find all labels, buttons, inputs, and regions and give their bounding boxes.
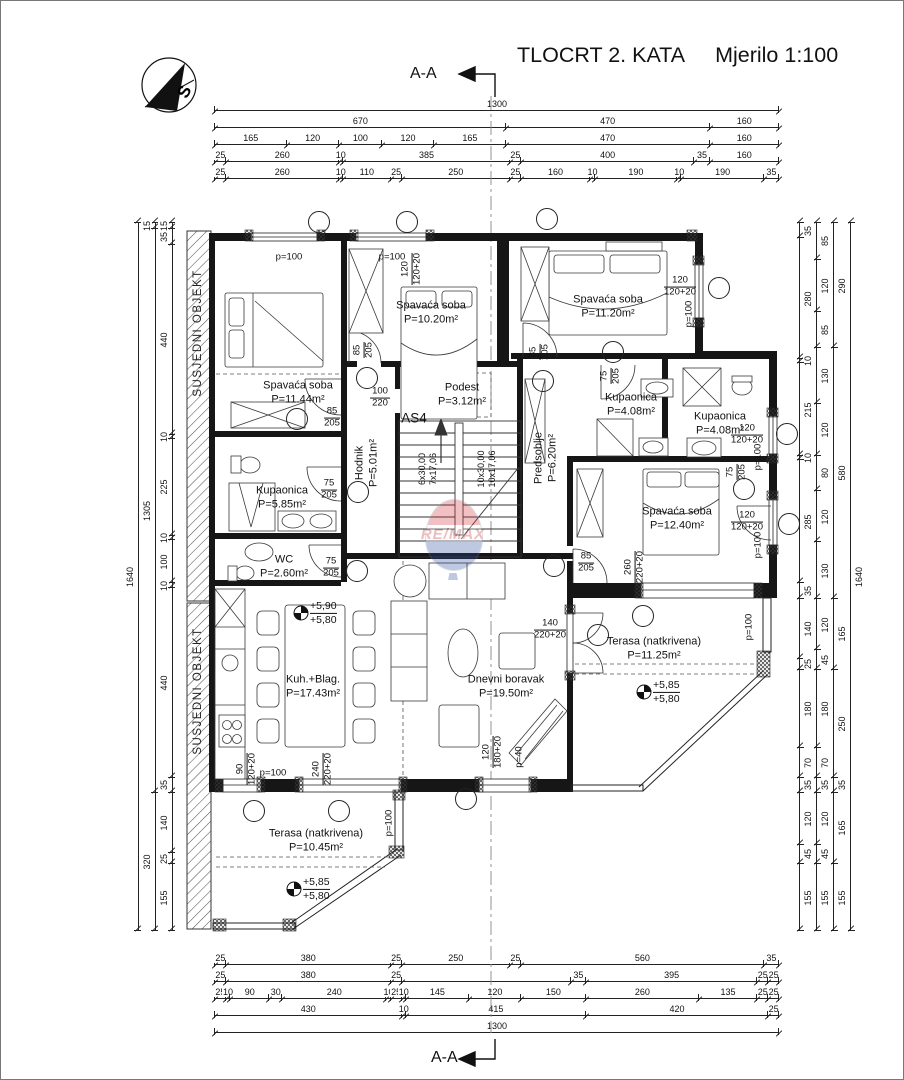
room-name: Spavaća soba	[396, 299, 466, 313]
room-label: Dnevni boravakP=19.50m²	[468, 673, 544, 701]
room-label: KupaonicaP=5.85m²	[256, 484, 308, 512]
position-marker-icon	[708, 277, 730, 299]
parapet-label: p=100	[753, 532, 764, 559]
level-value: +5,85+5,80	[303, 876, 330, 902]
position-marker-icon	[356, 367, 378, 389]
position-marker-icon	[286, 408, 308, 430]
floor-plan-sheet: TLOCRT 2. KATAMjerilo 1:100 A-A A-A S	[0, 0, 904, 1080]
position-marker-icon	[455, 788, 477, 810]
room-label: PodestP=3.12m²	[438, 381, 486, 409]
position-marker-icon	[587, 624, 609, 646]
opening-size-label: 85205	[529, 344, 552, 360]
room-area: P=12.40m²	[642, 519, 712, 533]
room-name: Terasa (natkrivena)	[607, 635, 701, 649]
position-marker-icon	[346, 560, 368, 582]
parapet-label: p=100	[744, 614, 755, 641]
opening-size-label: 90120+20	[236, 753, 259, 785]
parapet-label: p=40	[514, 746, 525, 767]
position-marker-icon	[602, 341, 624, 363]
parapet-label: p=100	[276, 252, 303, 263]
room-name: Spavaća soba	[263, 379, 333, 393]
level-value: +5,85+5,80	[653, 679, 680, 705]
room-label: WCP=2.60m²	[260, 553, 308, 581]
room-area: P=4.08m²	[605, 405, 657, 419]
room-label: Terasa (natkrivena)P=11.25m²	[607, 635, 701, 663]
stair-run-label: 6x30,007x17,06	[417, 453, 440, 485]
opening-size-label: 85205	[578, 552, 594, 575]
room-label: Terasa (natkrivena)P=10.45m²	[269, 827, 363, 855]
room-area: P=3.12m²	[438, 395, 486, 409]
level-marker-icon	[294, 606, 309, 621]
neighbor-building-label: SUSJEDNI OBJEKT	[192, 627, 204, 754]
room-label: HodnikP=5.01m²	[353, 439, 381, 487]
room-area: P=17.43m²	[286, 687, 340, 701]
opening-size-label: 120120+20	[664, 276, 696, 299]
level-value: +5,90+5,80	[310, 600, 337, 626]
neighbor-building-label: SUSJEDNI OBJEKT	[192, 269, 204, 396]
room-label: PredsobljeP=6.20m²	[532, 432, 560, 484]
room-area: P=19.50m²	[468, 687, 544, 701]
room-label: Kuh.+Blag.P=17.43m²	[286, 673, 340, 701]
parapet-label: p=100	[379, 252, 406, 263]
position-marker-icon	[328, 800, 350, 822]
room-name: WC	[260, 553, 308, 567]
opening-size-label: 100220	[370, 387, 390, 410]
opening-size-label: 75205	[600, 368, 623, 384]
room-name: Podest	[438, 381, 486, 395]
level-marker-icon	[287, 882, 302, 897]
position-marker-icon	[396, 211, 418, 233]
room-label: Spavaća sobaP=10.20m²	[396, 299, 466, 327]
parapet-label: p=100	[260, 768, 287, 779]
parapet-label: p=100	[384, 810, 395, 837]
position-marker-icon	[308, 211, 330, 233]
opening-size-label: 75205	[323, 557, 339, 580]
room-area: P=10.20m²	[396, 313, 466, 327]
room-label: Spavaća sobaP=11.20m²	[573, 293, 643, 321]
room-name: Kuh.+Blag.	[286, 673, 340, 687]
opening-size-label: 85205	[353, 342, 376, 358]
position-marker-icon	[347, 481, 369, 503]
position-marker-icon	[532, 370, 554, 392]
parapet-label: p=100	[684, 301, 695, 328]
parapet-label: AS4	[401, 411, 427, 426]
room-area: P=11.44m²	[263, 393, 333, 407]
opening-size-label: 85205	[324, 407, 340, 430]
room-area: P=5.85m²	[256, 498, 308, 512]
room-name: Dnevni boravak	[468, 673, 544, 687]
opening-size-label: 260220+20	[624, 551, 647, 583]
plan-labels: Spavaća sobaP=11.44m²Spavaća sobaP=10.20…	[1, 1, 904, 1080]
opening-size-label: 140220+20	[534, 619, 566, 642]
room-area: P=2.60m²	[260, 567, 308, 581]
room-area: P=11.20m²	[573, 307, 643, 321]
position-marker-icon	[778, 513, 800, 535]
position-marker-icon	[536, 208, 558, 230]
room-area: P=11.25m²	[607, 649, 701, 663]
position-marker-icon	[632, 605, 654, 627]
room-area: P=10.45m²	[269, 841, 363, 855]
room-name: Spavaća soba	[573, 293, 643, 307]
position-marker-icon	[243, 800, 265, 822]
opening-size-label: 240220+20	[312, 753, 335, 785]
room-name: Hodnik	[353, 439, 367, 487]
room-name: Spavaća soba	[642, 505, 712, 519]
position-marker-icon	[776, 423, 798, 445]
opening-size-label: 120120+20	[731, 511, 763, 534]
stair-run-label: 10x30,0010x17,06	[476, 450, 499, 487]
opening-size-label: 120180+20	[482, 736, 505, 768]
level-marker-icon	[637, 685, 652, 700]
room-name: Kupaonica	[256, 484, 308, 498]
room-label: Spavaća sobaP=12.40m²	[642, 505, 712, 533]
parapet-label: p=100	[753, 444, 764, 471]
room-name: Predsoblje	[532, 432, 546, 484]
room-name: Terasa (natkrivena)	[269, 827, 363, 841]
room-area: P=6.20m²	[546, 432, 560, 484]
position-marker-icon	[733, 478, 755, 500]
room-area: P=5.01m²	[367, 439, 381, 487]
room-label: Spavaća sobaP=11.44m²	[263, 379, 333, 407]
room-label: KupaonicaP=4.08m²	[605, 391, 657, 419]
room-name: Kupaonica	[605, 391, 657, 405]
opening-size-label: 75205	[321, 479, 337, 502]
position-marker-icon	[543, 555, 565, 577]
